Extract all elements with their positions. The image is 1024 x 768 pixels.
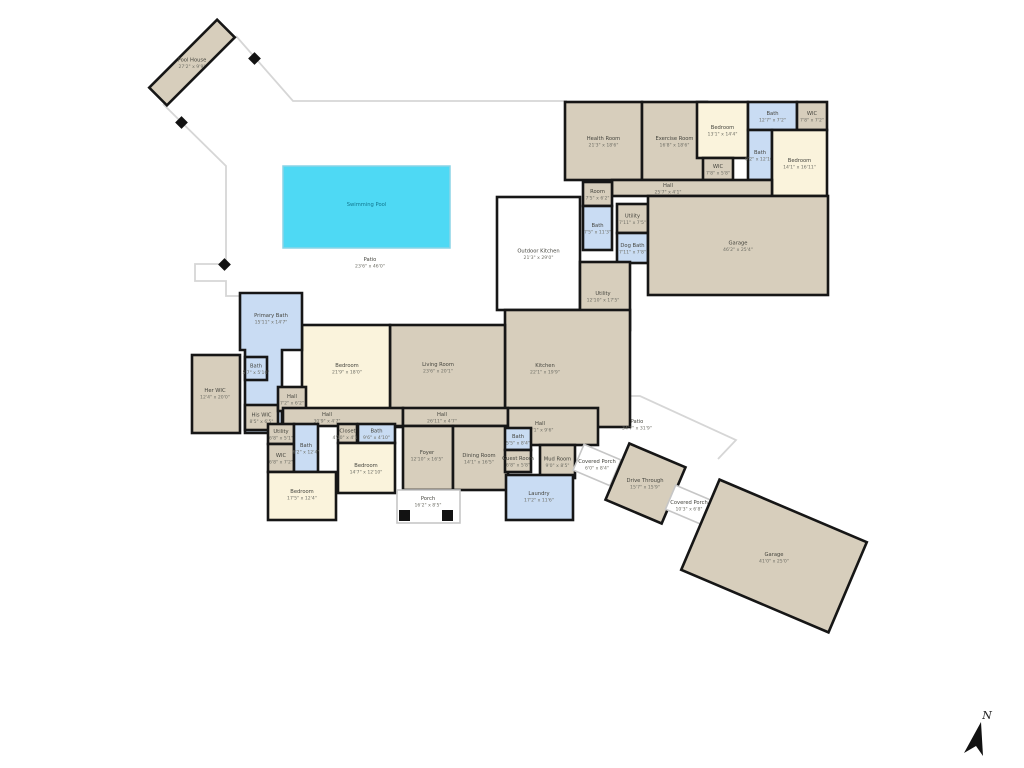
room-dims-label: 25'7" x 4'1": [654, 190, 681, 196]
room-dims-label: 6'2" x 12'10": [745, 157, 775, 163]
room-dims-label: 12'10" x 17'5": [587, 298, 620, 304]
room-dims-label: 14'1" x 16'5": [464, 460, 494, 466]
room-bath-1: Bath12'7" x 7'2": [748, 102, 797, 130]
room-wic-3: WIC6'8" x 7'2": [268, 444, 294, 472]
room-her-wic: Her WIC12'4" x 20'0": [192, 355, 240, 433]
room-name-label: Exercise Room: [655, 136, 693, 142]
room-name-label: Hall: [535, 421, 545, 427]
room-name-label: Primary Bath: [254, 313, 288, 319]
room-name-label: Patio: [631, 419, 644, 425]
room-her-wic-shape: [192, 355, 240, 433]
room-bedroom-2: Bedroom14'1" x 16'11": [772, 130, 827, 196]
room-name-label: Hall: [437, 412, 447, 418]
room-outdoor-kitchen: Outdoor Kitchen21'3" x 29'0": [497, 197, 580, 310]
patio-label-pool: Patio23'6" x 46'0": [355, 257, 385, 270]
room-bedroom-4: Bedroom14'7" x 12'10": [338, 443, 395, 493]
fence-post-marker: [218, 258, 231, 271]
room-bath-2: Bath6'2" x 12'10": [745, 130, 775, 180]
room-garage-attached: Garage46'2" x 25'4": [648, 196, 828, 295]
room-mud-room: Mud Room9'0" x 8'5": [540, 445, 575, 478]
room-laundry: Laundry17'2" x 11'6": [506, 475, 573, 520]
room-health-room: Health Room21'3" x 18'6": [565, 102, 642, 180]
room-wic-1: WIC7'8" x 5'8": [703, 158, 733, 180]
room-dims-label: 12'7" x 7'2": [759, 118, 786, 124]
room-dims-label: 7'11" x 7'5": [619, 220, 646, 226]
room-dims-label: 41'0" x 25'0": [759, 559, 789, 565]
room-foyer: Foyer12'10" x 16'5": [403, 426, 453, 490]
room-dims-label: 9'0" x 8'5": [545, 463, 569, 469]
room-dims-label: 7'5" x 6'2": [585, 196, 609, 202]
room-guest-room: Guest Room6'8" x 5'8": [502, 450, 534, 472]
room-name-label: Laundry: [528, 491, 549, 497]
room-dims-label: 6'2" x 12'4": [292, 450, 319, 456]
room-dims-label: 23'6" x 46'0": [355, 264, 385, 270]
room-name-label: His WIC: [252, 413, 272, 419]
room-dims-label: 6'8" x 7'2": [269, 460, 293, 466]
room-dims-label: 7'8" x 5'8": [706, 171, 730, 177]
room-name-label: Bath: [754, 150, 766, 156]
room-bedroom-3: Bedroom17'5" x 12'4": [268, 472, 336, 520]
north-arrow: N: [964, 709, 992, 756]
room-bath-4: Bath5'7" x 5'10": [242, 357, 269, 380]
room-dims-label: 7'11" x 7'8": [619, 250, 646, 256]
room-name-label: Bath: [591, 223, 603, 229]
room-name-label: Dining Room: [462, 453, 495, 459]
room-name-label: Health Room: [587, 136, 620, 142]
room-dims-label: 9'6" x 4'10": [363, 435, 390, 441]
room-name-label: Hall: [287, 394, 297, 400]
room-bedroom-primary: Bedroom21'9" x 18'0": [302, 325, 390, 420]
room-hall-4: Hall26'11" x 4'7": [403, 408, 508, 426]
room-name-label: Hall: [663, 183, 673, 189]
room-name-label: Bedroom: [335, 363, 358, 369]
room-name-label: Bedroom: [290, 489, 313, 495]
room-dims-label: 5'5" x 8'4": [506, 441, 530, 447]
room-bath-6: Bath9'6" x 4'10": [358, 424, 395, 443]
room-name-label: Dog Bath: [620, 243, 644, 249]
room-name-label: Utility: [273, 429, 288, 435]
room-dims-label: 15'7" x 15'9": [630, 485, 660, 491]
swimming-pool: Swimming Pool: [283, 166, 450, 248]
room-dims-label: 6'8" x 5'8": [506, 463, 530, 469]
room-name-label: Drive Through: [627, 478, 664, 484]
room-bedroom-1: Bedroom13'1" x 14'4": [697, 102, 748, 158]
room-name-label: Bedroom: [711, 125, 734, 131]
room-name-label: Foyer: [420, 450, 435, 456]
room-name-label: Utility: [595, 291, 610, 297]
room-name-label: Mud Room: [544, 457, 571, 463]
room-name-label: Bath: [300, 443, 312, 449]
room-name-label: Bath: [766, 111, 778, 117]
room-name-label: Covered Porch: [578, 459, 615, 465]
room-name-label: WIC: [713, 164, 724, 170]
room-bath-5: Bath6'2" x 12'4": [292, 424, 319, 472]
room-dims-label: 6'0" x 8'4": [585, 466, 609, 472]
north-arrow-icon: [964, 722, 983, 756]
floor-plan: Pool House27'2" x 9'9" Swimming Pool Pat…: [0, 0, 1024, 768]
room-dog-bath: Dog Bath7'11" x 7'8": [617, 233, 648, 263]
room-dims-label: 34'7" x 31'9": [622, 426, 652, 432]
boundary-line-north: [236, 36, 567, 101]
porch-pillar: [399, 510, 410, 521]
room-dims-label: 10'3" x 6'8": [675, 507, 702, 513]
room-dining-room: Dining Room14'1" x 16'5": [453, 426, 508, 490]
north-label: N: [981, 709, 992, 722]
room-name-label: Covered Porch: [670, 500, 707, 506]
room-dims-label: 6'8" x 5'1": [269, 436, 293, 442]
room-name-label: WIC: [276, 453, 287, 459]
room-dims-label: 46'2" x 25'4": [723, 247, 753, 253]
room-name-label: Utility: [625, 214, 640, 220]
room-hall-1-shape: [612, 180, 772, 196]
room-dims-label: 15'11" x 14'7": [255, 320, 288, 326]
room-dims-label: 26'11" x 4'7": [427, 419, 457, 425]
room-utility-1: Utility7'11" x 7'5": [617, 204, 648, 233]
room-dims-label: 16'8" x 18'6": [660, 143, 690, 149]
room-name-label: Bath: [250, 364, 262, 370]
room-name-label: Pool House: [178, 58, 207, 64]
room-name-label: Swimming Pool: [347, 202, 387, 208]
room-bath-7: Bath5'5" x 8'4": [505, 428, 531, 450]
room-laundry-shape: [506, 475, 573, 520]
room-name-label: Porch: [421, 496, 435, 502]
room-dims-label: 14'7" x 12'10": [350, 470, 383, 476]
porch-pillar: [442, 510, 453, 521]
room-dims-label: 22'1" x 19'9": [530, 370, 560, 376]
room-utility-3: Utility6'8" x 5'1": [268, 424, 294, 444]
room-name-label: Bath: [370, 429, 382, 435]
room-dims-label: 21'9" x 18'0": [332, 370, 362, 376]
room-dims-label: 27'2" x 9'9": [178, 64, 205, 70]
room-dims-label: 7'5" x 11'3": [584, 230, 611, 236]
room-dims-label: 12'4" x 20'0": [200, 395, 230, 401]
room-name-label: WIC: [807, 111, 818, 117]
room-dims-label: 21'3" x 18'6": [589, 143, 619, 149]
room-name-label: Bedroom: [354, 463, 377, 469]
room-dims-label: 12'10" x 16'5": [411, 457, 444, 463]
room-dims-label: 7'8" x 7'2": [800, 118, 824, 124]
boundary-line-west: [163, 104, 240, 296]
room-dims-label: 21'3" x 29'0": [524, 255, 554, 261]
room-name-label: Living Room: [422, 362, 454, 368]
room-dims-label: 13'1" x 14'4": [708, 132, 738, 138]
room-name-label: Outdoor Kitchen: [517, 249, 559, 255]
room-dims-label: 23'6" x 20'1": [423, 369, 453, 375]
room-name-label: Her WIC: [204, 388, 226, 394]
room-room: Room7'5" x 6'2": [583, 182, 612, 206]
room-name-label: Hall: [322, 412, 332, 418]
room-name-label: Patio: [364, 257, 377, 263]
room-dims-label: 14'1" x 16'11": [783, 165, 816, 171]
room-name-label: Garage: [729, 241, 748, 247]
room-name-label: Bath: [512, 434, 524, 440]
room-dims-label: 5'7" x 5'10": [242, 370, 269, 376]
room-dims-label: 17'5" x 12'4": [287, 496, 317, 502]
room-dims-label: 16'2" x 8'5": [414, 503, 441, 509]
room-name-label: Garage: [765, 552, 784, 558]
room-name-label: Closet: [339, 429, 355, 435]
room-name-label: Guest Room: [502, 456, 534, 462]
room-dims-label: 7'2" x 6'2": [280, 401, 304, 407]
room-name-label: Kitchen: [535, 363, 555, 369]
room-dims-label: 17'2" x 11'6": [524, 498, 554, 504]
room-name-label: Bedroom: [788, 158, 811, 164]
room-bath-3: Bath7'5" x 11'3": [583, 206, 612, 250]
room-hall-1: Hall25'7" x 4'1": [612, 180, 772, 196]
room-garage-detached: Garage41'0" x 25'0": [681, 480, 867, 633]
room-pool-house: Pool House27'2" x 9'9": [149, 20, 235, 106]
room-name-label: Room: [590, 189, 605, 195]
room-wic-2: WIC7'8" x 7'2": [797, 102, 827, 130]
